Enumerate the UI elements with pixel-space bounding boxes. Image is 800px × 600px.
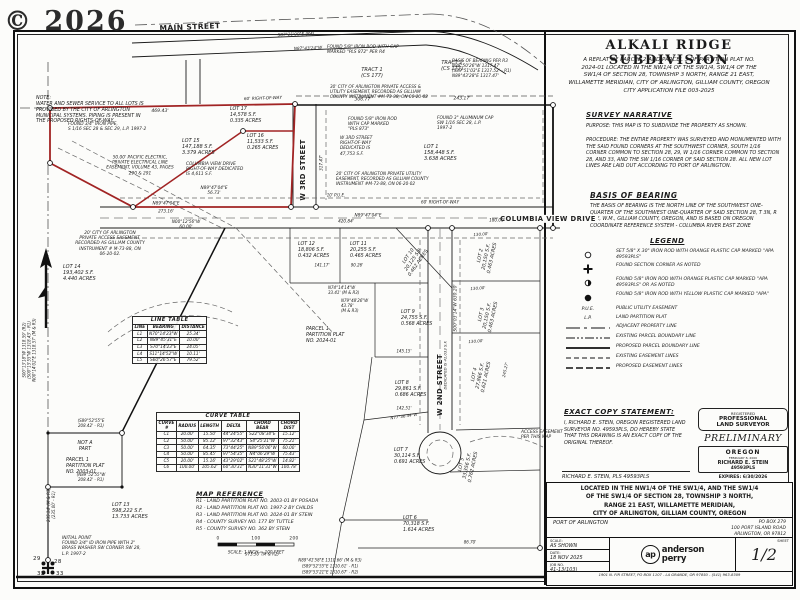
w2nd-dedication: DEDICATED IS 41,033 S.F. <box>444 341 449 390</box>
curve-table-header: DELTA <box>221 420 246 431</box>
curve-table-cell: 97°54'35" <box>221 451 246 458</box>
line-table-cell: 25.34' <box>180 331 207 338</box>
curve-table-header: LENGTH <box>198 420 221 431</box>
legend-item-label: FOUND 5/8" IRON ROD WITH YELLOW PLASTIC … <box>616 292 788 298</box>
line-table-cell: 79.52' <box>180 357 207 364</box>
dim-469: 469.43' <box>151 109 168 115</box>
map-reference-item: R2 - LAND PARTITION PLAT NO. 1997-2 BY C… <box>196 505 318 512</box>
curve-table-cell: 50.00' <box>176 445 198 452</box>
scale-caption: SCALE: 1 INCH = 100 FEET <box>228 549 284 554</box>
dim-180: 180.00' <box>489 217 505 222</box>
map-reference-item: R1 - LAND PARTITION PLAT NO. 2003-01 BY … <box>196 498 318 505</box>
lot-label-17: LOT 17 14,578 S.F. 0.335 ACRES <box>230 107 261 125</box>
found-rod-872-note: FOUND 5/8" IRON ROD WITH CAP MARKED "PLS… <box>327 45 399 55</box>
curve-table-cell: S4°25'21"W <box>246 438 278 445</box>
dim-208-top: (S89°52'55"E 208.42' - R1) <box>78 419 105 429</box>
preliminary-mark: PRELIMINARY <box>698 433 788 444</box>
curve-table-cell: 43°29'02" <box>221 458 246 465</box>
curve-table-cell: 15.50' <box>198 431 221 438</box>
basis-of-bearing-text: THE BASIS OF BEARING IS THE NORTH LINE O… <box>590 203 782 229</box>
bearing-n7948: N79°48'26"W 43.78' (M & R3) <box>341 299 368 314</box>
scale-bar <box>218 543 294 546</box>
client-name: PORT OF ARLINGTON <box>553 520 608 537</box>
map-reference: MAP REFERENCE R1 - LAND PARTITION PLAT N… <box>196 490 318 533</box>
bearing-n8947-top: N89°47'04"E <box>355 212 382 217</box>
location-statement: LOCATED IN THE NW1/4 OF THE SW1/4, AND T… <box>546 482 793 521</box>
stamp-number: 49593PLS <box>700 466 786 471</box>
curve-table-row: C250.00'85.12'97°32'43"S4°25'21"W75.21' <box>157 438 300 445</box>
lot-label-14: LOT 14 193,402 S.F. 4.440 ACRES <box>63 264 96 282</box>
line-table-cell: 24.05' <box>180 344 207 351</box>
section-num-28: 28 <box>54 559 62 566</box>
date-value: 18 NOV 2025 <box>550 555 606 561</box>
survey-narrative-purpose: PURPOSE: THIS MAP IS TO SUBDIVIDE THE PR… <box>586 123 782 130</box>
curve-table: CURVE TABLECURVE #RADIUSLENGTHDELTACHORD… <box>156 412 300 472</box>
line-table-cell: L5 <box>133 357 148 364</box>
dim-130-b: 130.00' <box>470 286 485 292</box>
sheet-meta: SCALE: AS SHOWN DATE: 18 NOV 2025 JOB NO… <box>547 538 610 571</box>
section-num-33: 33 <box>56 571 64 578</box>
curve-table-cell: C4 <box>157 451 177 458</box>
legend-item: PROPOSED PARCEL BOUNDARY LINE <box>560 344 788 351</box>
legend-item-label: PROPOSED PARCEL BOUNDARY LINE <box>616 344 788 350</box>
firm-logo: ap anderson perry <box>610 538 735 571</box>
curve-table-header: RADIUS <box>176 420 198 431</box>
section-num-29: 29 <box>33 556 41 563</box>
line-table-row: L5S60°26'57"E79.52' <box>133 357 207 364</box>
curve-table-row: C120.00'15.50'44°24'55"S22°08'34"E15.12' <box>157 431 300 438</box>
map-reference-item: R4 - COUNTY SURVEY NO. 177 BY TUTTLE <box>196 519 318 526</box>
north-arrow-icon <box>38 248 52 328</box>
curve-table-cell: 50.00' <box>176 438 198 445</box>
curve-table-cell: 60°30'31" <box>221 464 246 471</box>
copyright-mark: © 2026 <box>4 6 128 37</box>
lot-label-6: LOT 6 70,318 S.F. 1.614 ACRES <box>403 516 434 534</box>
curve-table-cell: 20.00' <box>176 458 198 465</box>
legend-item: ADJACENT PROPERTY LINE <box>560 324 788 331</box>
client-address-line: 100 PORT ISLAND ROAD <box>731 526 786 532</box>
scale-tick-200: 200 <box>289 535 298 540</box>
dim-130-c: 130.00' <box>468 339 483 345</box>
legend-item-label: ADJACENT PROPERTY LINE <box>616 324 788 330</box>
legend-symbol-line-proposed-parcel-icon <box>560 344 616 351</box>
curve-table-cell: 85.45' <box>198 451 221 458</box>
curve-table-cell: 60.00' <box>279 445 300 452</box>
curve-table-row: C6100.00'105.62'60°30'31"N30°11'31"W100.… <box>157 464 300 471</box>
date-cell: DATE: 18 NOV 2025 <box>547 550 609 562</box>
line-table-header: BEARING <box>147 324 179 331</box>
legend-item-label: PROPOSED EASEMENT LINES <box>616 364 788 370</box>
legend-item: FOUND 5/8" IRON ROD WITH ORANGE PLASTIC … <box>560 277 788 288</box>
client-address: PO BOX 279 100 PORT ISLAND ROAD ARLINGTO… <box>731 520 786 537</box>
scale-tick-0: 0 <box>216 535 219 540</box>
section-num-32: 32 <box>37 571 45 578</box>
lot-label-15: LOT 15 147,188 S.F. 3.379 ACRES <box>182 138 215 156</box>
dim-208-bottom: (N89°52'55"W 208.42' - R1) <box>77 473 106 483</box>
pue-10: 10' P.U.E. <box>327 194 346 199</box>
anderson-perry-monogram-icon: ap <box>641 545 660 564</box>
legend-item-label: EXISTING EASEMENT LINES <box>616 354 788 360</box>
curve-table-cell: 20.00' <box>176 431 198 438</box>
note-block: NOTE: WATER AND SEWER SERVICE TO ALL LOT… <box>36 96 144 125</box>
legend-heading: LEGEND <box>650 237 684 245</box>
curve-table-cell: 14.82' <box>279 458 300 465</box>
line-table-cell: L3 <box>133 344 148 351</box>
curve-table-cell: S21°48'25"W <box>246 458 278 465</box>
curve-table-cell: 15.12' <box>279 431 300 438</box>
sheet-label: SHEET <box>777 539 789 543</box>
curve-table-cell: C3 <box>157 445 177 452</box>
access-easement-map-note: ACCESS EASEMENT PER THIS MAP <box>521 430 563 440</box>
curve-table-header-row: CURVE #RADIUSLENGTHDELTACHORD BEARCHORD … <box>157 420 300 431</box>
lot-label-12: LOT 12 18,806 S.F. 0.432 ACRES <box>298 242 329 260</box>
stamp-state: OREGON <box>700 449 786 456</box>
curve-table-cell: 50.00' <box>176 451 198 458</box>
legend-item: P.U.E.PUBLIC UTILITY EASEMENT <box>560 306 788 312</box>
curve-table-row: C450.00'85.45'97°54'35"N4°06'29"W75.43' <box>157 451 300 458</box>
curve-table-cell: 85.12' <box>198 438 221 445</box>
legend-item: L.P.LAND PARTITION PLAT <box>560 315 788 321</box>
legend-symbol-lp-icon: L.P. <box>560 315 616 321</box>
line-table-row: L3S70°14'23"E24.05' <box>133 344 207 351</box>
bearing-n0012: N00°12'56"W 60.00' <box>172 219 200 229</box>
curve-table-cell: 64.35' <box>198 445 221 452</box>
curve-table-cell: 75.43' <box>279 451 300 458</box>
bearing-n8947-5673: N89°47'04"E 56.73' <box>201 185 228 195</box>
firm-title-block: PORT OF ARLINGTON PO BOX 279 100 PORT IS… <box>546 517 793 586</box>
legend-item: EXISTING EASEMENT LINES <box>560 354 788 361</box>
legend-item-label: FOUND 5/8" IRON ROD WITH ORANGE PLASTIC … <box>616 277 788 288</box>
dim-243: 243.17' <box>454 96 471 101</box>
curve-table-cell: S22°08'34"E <box>246 431 278 438</box>
curve-table-cell: 100.00' <box>176 464 198 471</box>
utility-easement-20-note: 20' CITY OF ARLINGTON PRIVATE UTILITY EA… <box>336 171 429 186</box>
legend-symbol-section-corner-icon <box>560 263 616 274</box>
curve-table-row: C520.00'15.16'43°29'02"S21°48'25"W14.82' <box>157 458 300 465</box>
curve-table-cell: C2 <box>157 438 177 445</box>
lot-label-1: LOT 1 158,448 S.F. 3.638 ACRES <box>424 144 457 162</box>
line-table-header: LINE <box>133 324 148 331</box>
line-table-cell: L4 <box>133 351 148 358</box>
bearing-s0003: S00°03'14"W 630.20' <box>453 284 458 331</box>
dim-8670: 86.70' <box>464 541 477 546</box>
map-reference-heading: MAP REFERENCE <box>196 490 318 498</box>
line-table-cell: N89°45'31"E <box>147 337 179 344</box>
dim-bottom-3: (S89°53'21"E 1310.67' - R2) <box>302 570 359 575</box>
curve-table-cell: C6 <box>157 464 177 471</box>
stamp-oregon-box: OREGON FEBRUARY 8, 2000 RICHARD E. STEIN… <box>698 446 788 473</box>
legend-symbol-pue-icon: P.U.E. <box>560 306 616 312</box>
row-60-cvd: 60' RIGHT-OF-WAY <box>421 199 459 204</box>
dim-130-a: 130.00' <box>473 232 488 238</box>
legend-item-label: LAND PARTITION PLAT <box>616 315 788 321</box>
firm-name: anderson perry <box>662 546 704 562</box>
bearing-n7414: N74°14'14"W 33.41' (M & R3) <box>328 286 359 296</box>
curve-table-cell: 105.62' <box>198 464 221 471</box>
map-reference-item: R3 - LAND PARTITION PLAT NO. 2024-01 BY … <box>196 512 318 519</box>
scale-value: AS SHOWN <box>550 543 606 549</box>
surveyor-stamp: REGISTERED PROFESSIONAL LAND SURVEYOR PR… <box>698 408 788 480</box>
bearing-n8947: N89°47'04"E <box>153 200 180 205</box>
curve-table-cell: C5 <box>157 458 177 465</box>
curve-table-header: CHORD DIST <box>279 420 300 431</box>
firm-name-line2: perry <box>662 555 704 563</box>
exact-copy-heading: EXACT COPY STATEMENT: <box>564 408 674 416</box>
line-table-cell: L2 <box>133 337 148 344</box>
map-reference-item: R5 - COUNTY SURVEY NO. 362 BY STEIN <box>196 526 318 533</box>
legend-item: FOUND 5/8" IRON ROD WITH YELLOW PLASTIC … <box>560 292 788 303</box>
easement-30-note: 30' CITY OF ARLINGTON PRIVATE ACCESS & U… <box>330 84 428 99</box>
curve-table-cell: C1 <box>157 431 177 438</box>
not-a-part-label: NOT A PART <box>77 441 92 453</box>
surveyor-signature: RICHARD E. STEIN, PLS 49593PLS <box>562 471 690 481</box>
lot-label-16: LOT 16 11,533 S.F. 0.265 ACRES <box>247 134 278 152</box>
line-table-cell: S60°26'57"E <box>147 357 179 364</box>
survey-narrative-procedure: PROCEDURE: THE ENTIRE PROPERTY WAS SURVE… <box>586 137 782 170</box>
legend-item: FOUND SECTION CORNER AS NOTED <box>560 263 788 274</box>
stamp-registered-box: REGISTERED PROFESSIONAL LAND SURVEYOR <box>698 408 788 431</box>
dim-42084: 420.84' <box>338 218 354 223</box>
line-table-header-row: LINEBEARINGDISTANCE <box>133 324 207 331</box>
line-table-title: LINE TABLE <box>133 317 207 325</box>
lot-label-11: LOT 11 20,255 S.F. 0.465 ACRES <box>350 242 381 260</box>
line-table-cell: S11°14'52"W <box>147 351 179 358</box>
lot-label-13: LOT 13 598,222 S.F. 13.733 ACRES <box>112 502 148 520</box>
line-table-cell: 10.11' <box>180 351 207 358</box>
dim-23514: 235.14' (M & R3) (235.00' - R1) <box>47 488 57 522</box>
line-table-header: DISTANCE <box>180 324 207 331</box>
legend-item: SET 5/8" X 30" IRON ROD WITH ORANGE PLAS… <box>560 249 788 260</box>
curve-table-cell: N4°06'29"W <box>246 451 278 458</box>
found-rod-873-note: FOUND 5/8" IRON ROD WITH CAP MARKED "PLS… <box>348 117 397 133</box>
stamp-expires: EXPIRES: 6/30/2026 <box>698 475 788 480</box>
access-easement-note: 20' CITY OF ARLINGTON PRIVATE ACCESS EAS… <box>75 231 144 257</box>
sheet-subtitle: A REPLAT OF PARCEL 2 AND PARCEL 3 OF PAR… <box>550 57 788 95</box>
legend-symbol-circle-half-icon <box>560 277 616 288</box>
curve-table-title: CURVE TABLE <box>157 413 300 421</box>
curve-table-cell: N89°56'06"W <box>246 445 278 452</box>
stamp-land-surveyor: LAND SURVEYOR <box>700 422 786 428</box>
curve-table-cell: N30°11'31"W <box>246 464 278 471</box>
legend-symbol-line-adjacent-icon <box>560 324 616 331</box>
scale-tick-100: 100 <box>251 535 260 540</box>
legend-symbol-line-existing-parcel-icon <box>560 334 616 341</box>
line-table-cell: L1 <box>133 331 148 338</box>
curve-table-cell: 15.16' <box>198 458 221 465</box>
legend-item-label: PUBLIC UTILITY EASEMENT <box>616 306 788 312</box>
map-reference-list: R1 - LAND PARTITION PLAT NO. 2003-01 BY … <box>196 498 318 533</box>
legend-item-label: FOUND SECTION CORNER AS NOTED <box>616 263 788 269</box>
legend-item-label: SET 5/8" X 30" IRON ROD WITH ORANGE PLAS… <box>616 249 788 260</box>
job-value: 41-13(103) <box>550 567 606 573</box>
line-table-cell: S70°14'23"E <box>147 344 179 351</box>
dim-145: 145.15' <box>396 350 411 355</box>
legend-items: SET 5/8" X 30" IRON ROD WITH ORANGE PLAS… <box>560 249 788 374</box>
scale-cell: SCALE: AS SHOWN <box>547 538 609 550</box>
sheet-cell: SHEET 1/2 <box>735 538 792 571</box>
street-label-cvd: COLUMBIA VIEW DRIVE <box>498 215 598 223</box>
dim-14251: 142.51' <box>396 407 411 412</box>
initial-point-note: INITIAL POINT FOUND 3/4" ID IRON PIPE WI… <box>62 536 141 557</box>
survey-narrative-heading: SURVEY NARRATIVE <box>586 111 672 119</box>
line-table-cell: 10.00' <box>180 337 207 344</box>
curve-table-cell: 75.21' <box>279 438 300 445</box>
w3rd-dedication-note: W 3RD STREET RIGHT-OF-WAY DEDICATED IS 4… <box>340 136 372 157</box>
west-line-dims: S00°13'18"W 1318.59' (R2) (S00°15'55"W 1… <box>23 318 38 381</box>
dim-141: 141.17' <box>314 264 329 269</box>
curve-table-header: CURVE # <box>157 420 177 431</box>
legend-item-label: EXISTING PARCEL BOUNDARY LINE <box>616 334 788 340</box>
sheet-number: 1/2 <box>736 545 792 564</box>
legend-symbol-line-proposed-easement-icon <box>560 364 616 371</box>
legend-item: EXISTING PARCEL BOUNDARY LINE <box>560 334 788 341</box>
curve-table-row: C350.00'64.35'73°44'25"N89°56'06"W60.00' <box>157 445 300 452</box>
curve-table-cell: 73°44'25" <box>221 445 246 452</box>
lot-label-8: LOT 8 29,861 S.F. 0.686 ACRES <box>395 381 426 399</box>
curve-table-cell: 97°32'43" <box>221 438 246 445</box>
dim-273: 273.16' <box>158 208 174 213</box>
curve-table-cell: 100.78' <box>279 464 300 471</box>
firm-row: SCALE: AS SHOWN DATE: 18 NOV 2025 JOB NO… <box>547 538 792 571</box>
line-table: LINE TABLELINEBEARINGDISTANCEL1N70°14'23… <box>132 316 207 364</box>
lot-label-7: LOT 7 30,114 S.F. 0.691 ACRES <box>394 448 425 466</box>
line-table-row: L1N70°14'23"W25.34' <box>133 331 207 338</box>
exact-copy-text: I, RICHARD E. STEIN, OREGON REGISTERED L… <box>564 420 686 446</box>
client-row: PORT OF ARLINGTON PO BOX 279 100 PORT IS… <box>547 518 792 538</box>
found-pipe-note: FOUND 3/4" IRON PIPE, S 1/16 SEC 28 & SE… <box>68 122 146 132</box>
street-label-w3rd: W 3RD STREET <box>299 139 307 200</box>
legend-item: PROPOSED EASEMENT LINES <box>560 364 788 371</box>
legend-symbol-line-existing-easement-icon <box>560 354 616 361</box>
curve-table-header: CHORD BEAR <box>246 420 278 431</box>
line-table-cell: N70°14'23"W <box>147 331 179 338</box>
pacific-easement-note: 50.00' PACIFIC ELECTRIC, PRIVATE ELECTRI… <box>106 156 174 177</box>
client-address-line: ARLINGTON, OR 97812 <box>731 532 786 538</box>
line-table-row: L4S11°14'52"W10.11' <box>133 351 207 358</box>
tract-2-label: TRACT 2 (CS 177) <box>441 60 463 72</box>
basis-of-bearing-heading: BASIS OF BEARING <box>590 191 677 200</box>
title-panel: ALKALI RIDGE SUBDIVISION A REPLAT OF PAR… <box>546 31 794 585</box>
found-alum-cap-note: FOUND 3" ALUMINUM CAP SW 1/16 SEC 28, L.… <box>437 116 493 132</box>
legend-symbol-circle-filled-icon <box>560 292 616 303</box>
parcel-2024-label: PARCEL 1 PARTITION PLAT NO. 2024-01 <box>306 327 344 345</box>
dim-317: 317.47' <box>318 155 323 171</box>
dim-306: 306.77' <box>355 97 372 102</box>
plat-sheet: MAIN STREETS87°21'00"E (R4)N87°43'24"WNO… <box>0 0 800 600</box>
cvd-dedication-note: COLUMBIA VIEW DRIVE RIGHT-OF-WAY DEDICAT… <box>186 162 243 178</box>
job-cell: JOB NO. 41-13(103) <box>547 562 609 573</box>
legend-symbol-circle-open-icon <box>560 249 616 260</box>
line-table-row: L2N89°45'31"E10.00' <box>133 337 207 344</box>
curve-table-cell: 44°24'55" <box>221 431 246 438</box>
lot-label-9: LOT 9 24,755 S.F. 0.568 ACRES <box>401 310 432 328</box>
tract-1-label: TRACT 1 (CS 177) <box>361 67 383 79</box>
dim-9026: 90.26' <box>351 264 364 269</box>
